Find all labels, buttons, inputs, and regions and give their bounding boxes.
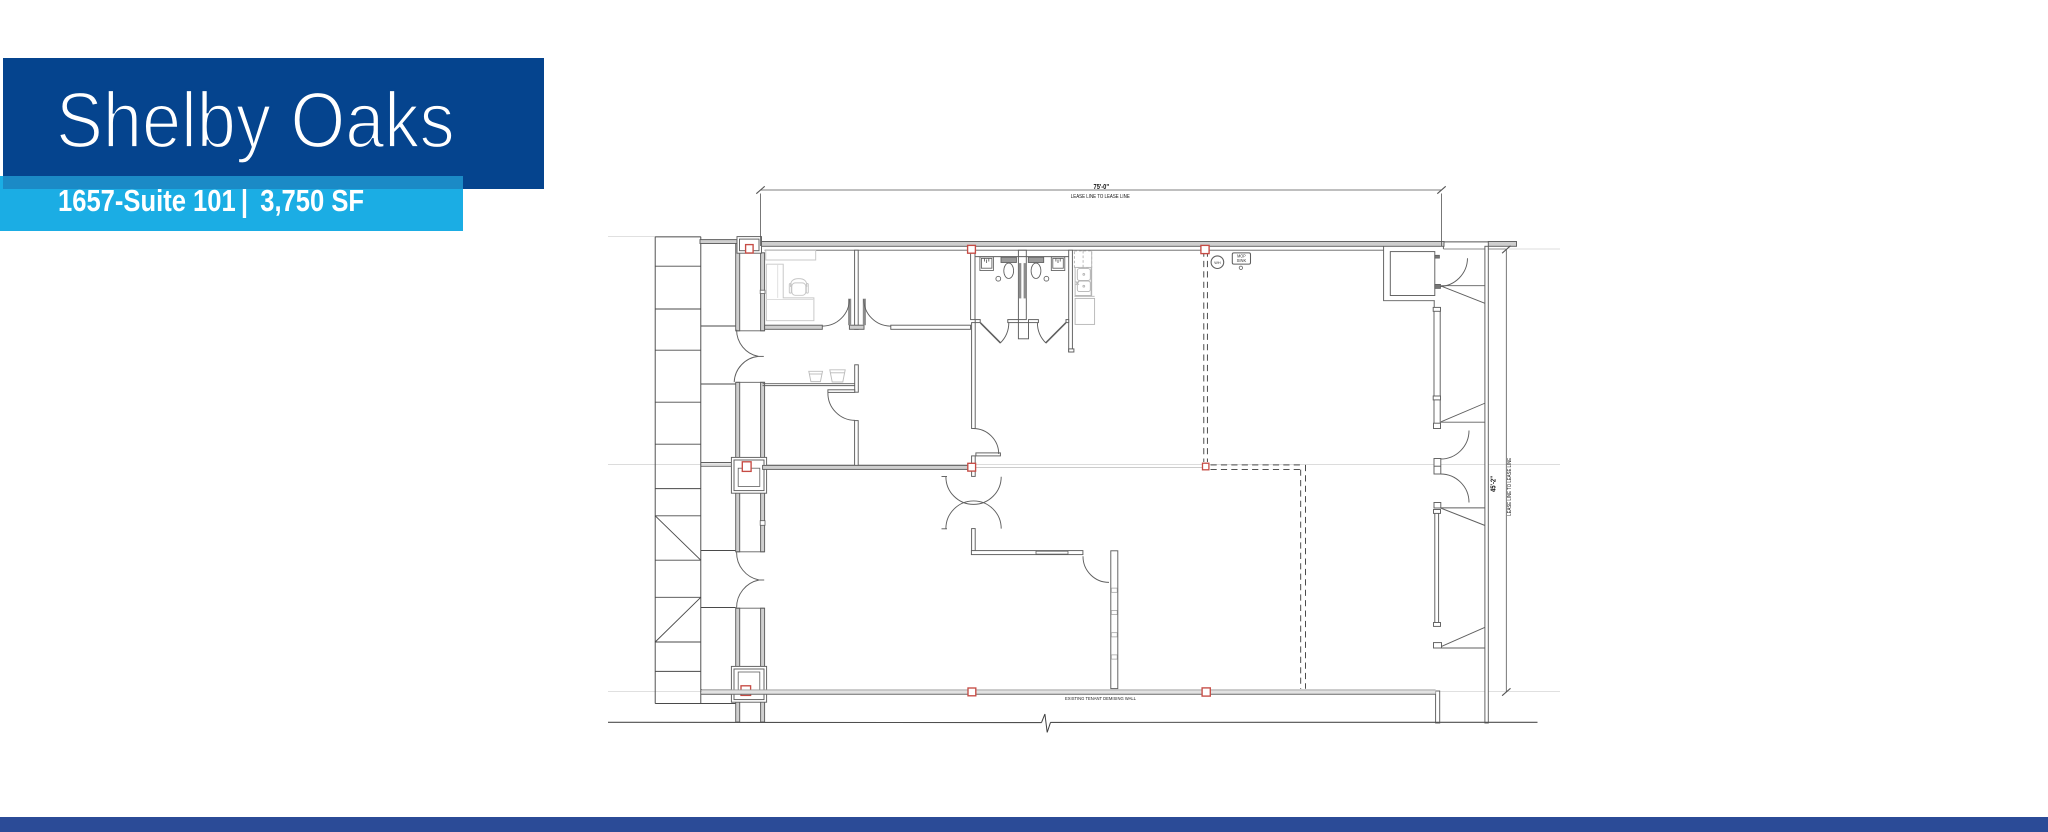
svg-text:EXISTING TENANT DEMISING WA: EXISTING TENANT DEMISING WALL bbox=[1065, 696, 1136, 702]
svg-text:LEASE LINE TO LEASE LINE: LEASE LINE TO LEASE LINE bbox=[1507, 457, 1513, 516]
svg-text:75'-0": 75'-0" bbox=[1094, 184, 1110, 191]
svg-text:45'-2": 45'-2" bbox=[1490, 476, 1497, 492]
svg-text:SINK: SINK bbox=[1237, 258, 1247, 263]
svg-text:WH: WH bbox=[1214, 261, 1221, 265]
svg-text:LEASE LINE TO LEASE LINE: LEASE LINE TO LEASE LINE bbox=[1071, 194, 1131, 200]
